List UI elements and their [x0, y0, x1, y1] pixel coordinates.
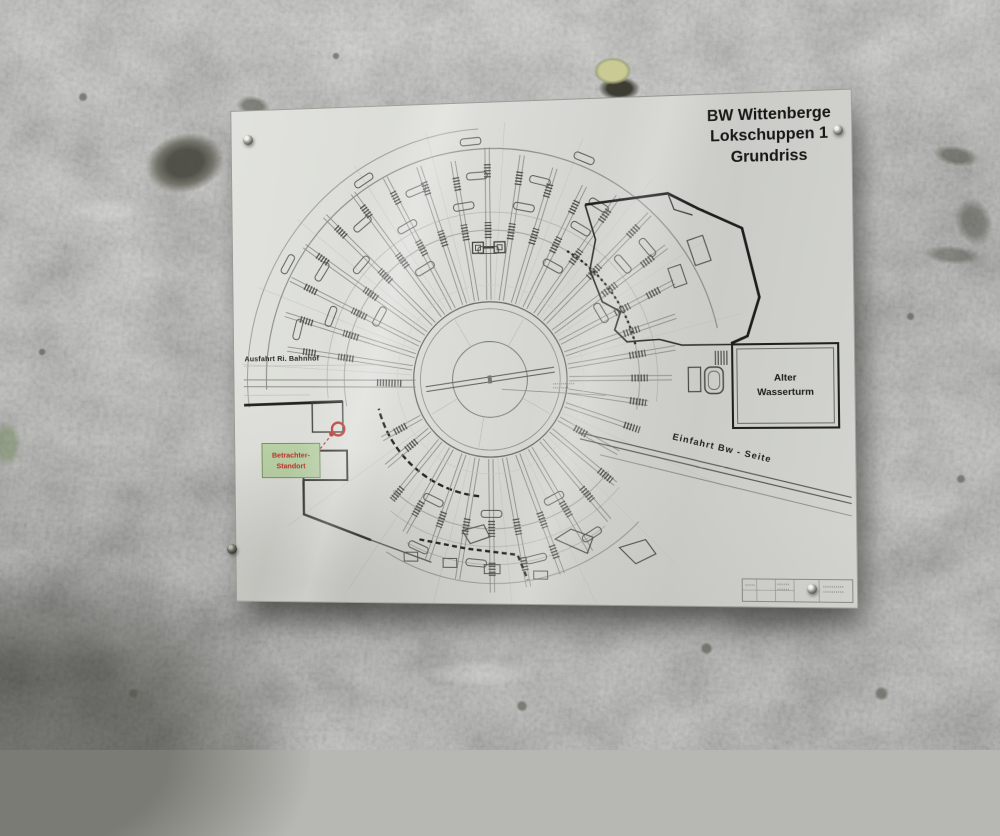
- label-exit-to-station: Ausfahrt Ri. Bahnhof: [244, 354, 319, 364]
- radial-tracks: [283, 142, 680, 595]
- water-tower-label-line-2: Wasserturm: [757, 386, 814, 401]
- water-tower-label-line-1: Alter: [774, 372, 797, 386]
- wall-stain: [78, 92, 88, 102]
- wall-paint-chip: [588, 56, 644, 100]
- wall-gouge: [140, 125, 230, 200]
- wall-plaster-ridge: [60, 200, 150, 222]
- water-tower-label: Alter Wasserturm: [736, 347, 835, 424]
- locomotive-outlines: [279, 131, 661, 568]
- photo-of-wall-mounted-plan: { "sign": { "title_lines": ["BW Wittenbe…: [0, 0, 1000, 750]
- mounting-screw: [243, 135, 253, 145]
- wall-stain: [516, 700, 528, 712]
- water-tower-outline: Alter Wasserturm: [731, 342, 840, 429]
- mounting-screw: [807, 584, 817, 594]
- wall-stain: [956, 474, 966, 484]
- turntable: [413, 300, 568, 457]
- viewer-label-line-1: Betrachter-: [272, 449, 310, 460]
- mounted-plan-panel: BW Wittenberge Lokschuppen 1 Grundriss A…: [230, 89, 858, 609]
- wall-stain: [700, 642, 713, 655]
- wall-stain: [128, 688, 139, 699]
- wall-crevice: [932, 142, 981, 170]
- mounting-screw: [833, 125, 843, 135]
- wall-crevice: [923, 244, 980, 266]
- wall-crevice: [949, 194, 998, 251]
- wall-moss-spot: [0, 422, 20, 466]
- viewer-label-line-2: Standort: [276, 461, 305, 472]
- wall-stain: [332, 52, 340, 60]
- wall-stain: [874, 686, 889, 701]
- mounting-screw: [227, 544, 237, 554]
- wall-stain: [38, 348, 46, 356]
- wall-plaster-ridge: [420, 660, 540, 686]
- wall-stain: [906, 312, 915, 321]
- plan-title: BW Wittenberge Lokschuppen 1 Grundriss: [691, 102, 847, 170]
- viewer-location-label: Betrachter- Standort: [261, 443, 320, 478]
